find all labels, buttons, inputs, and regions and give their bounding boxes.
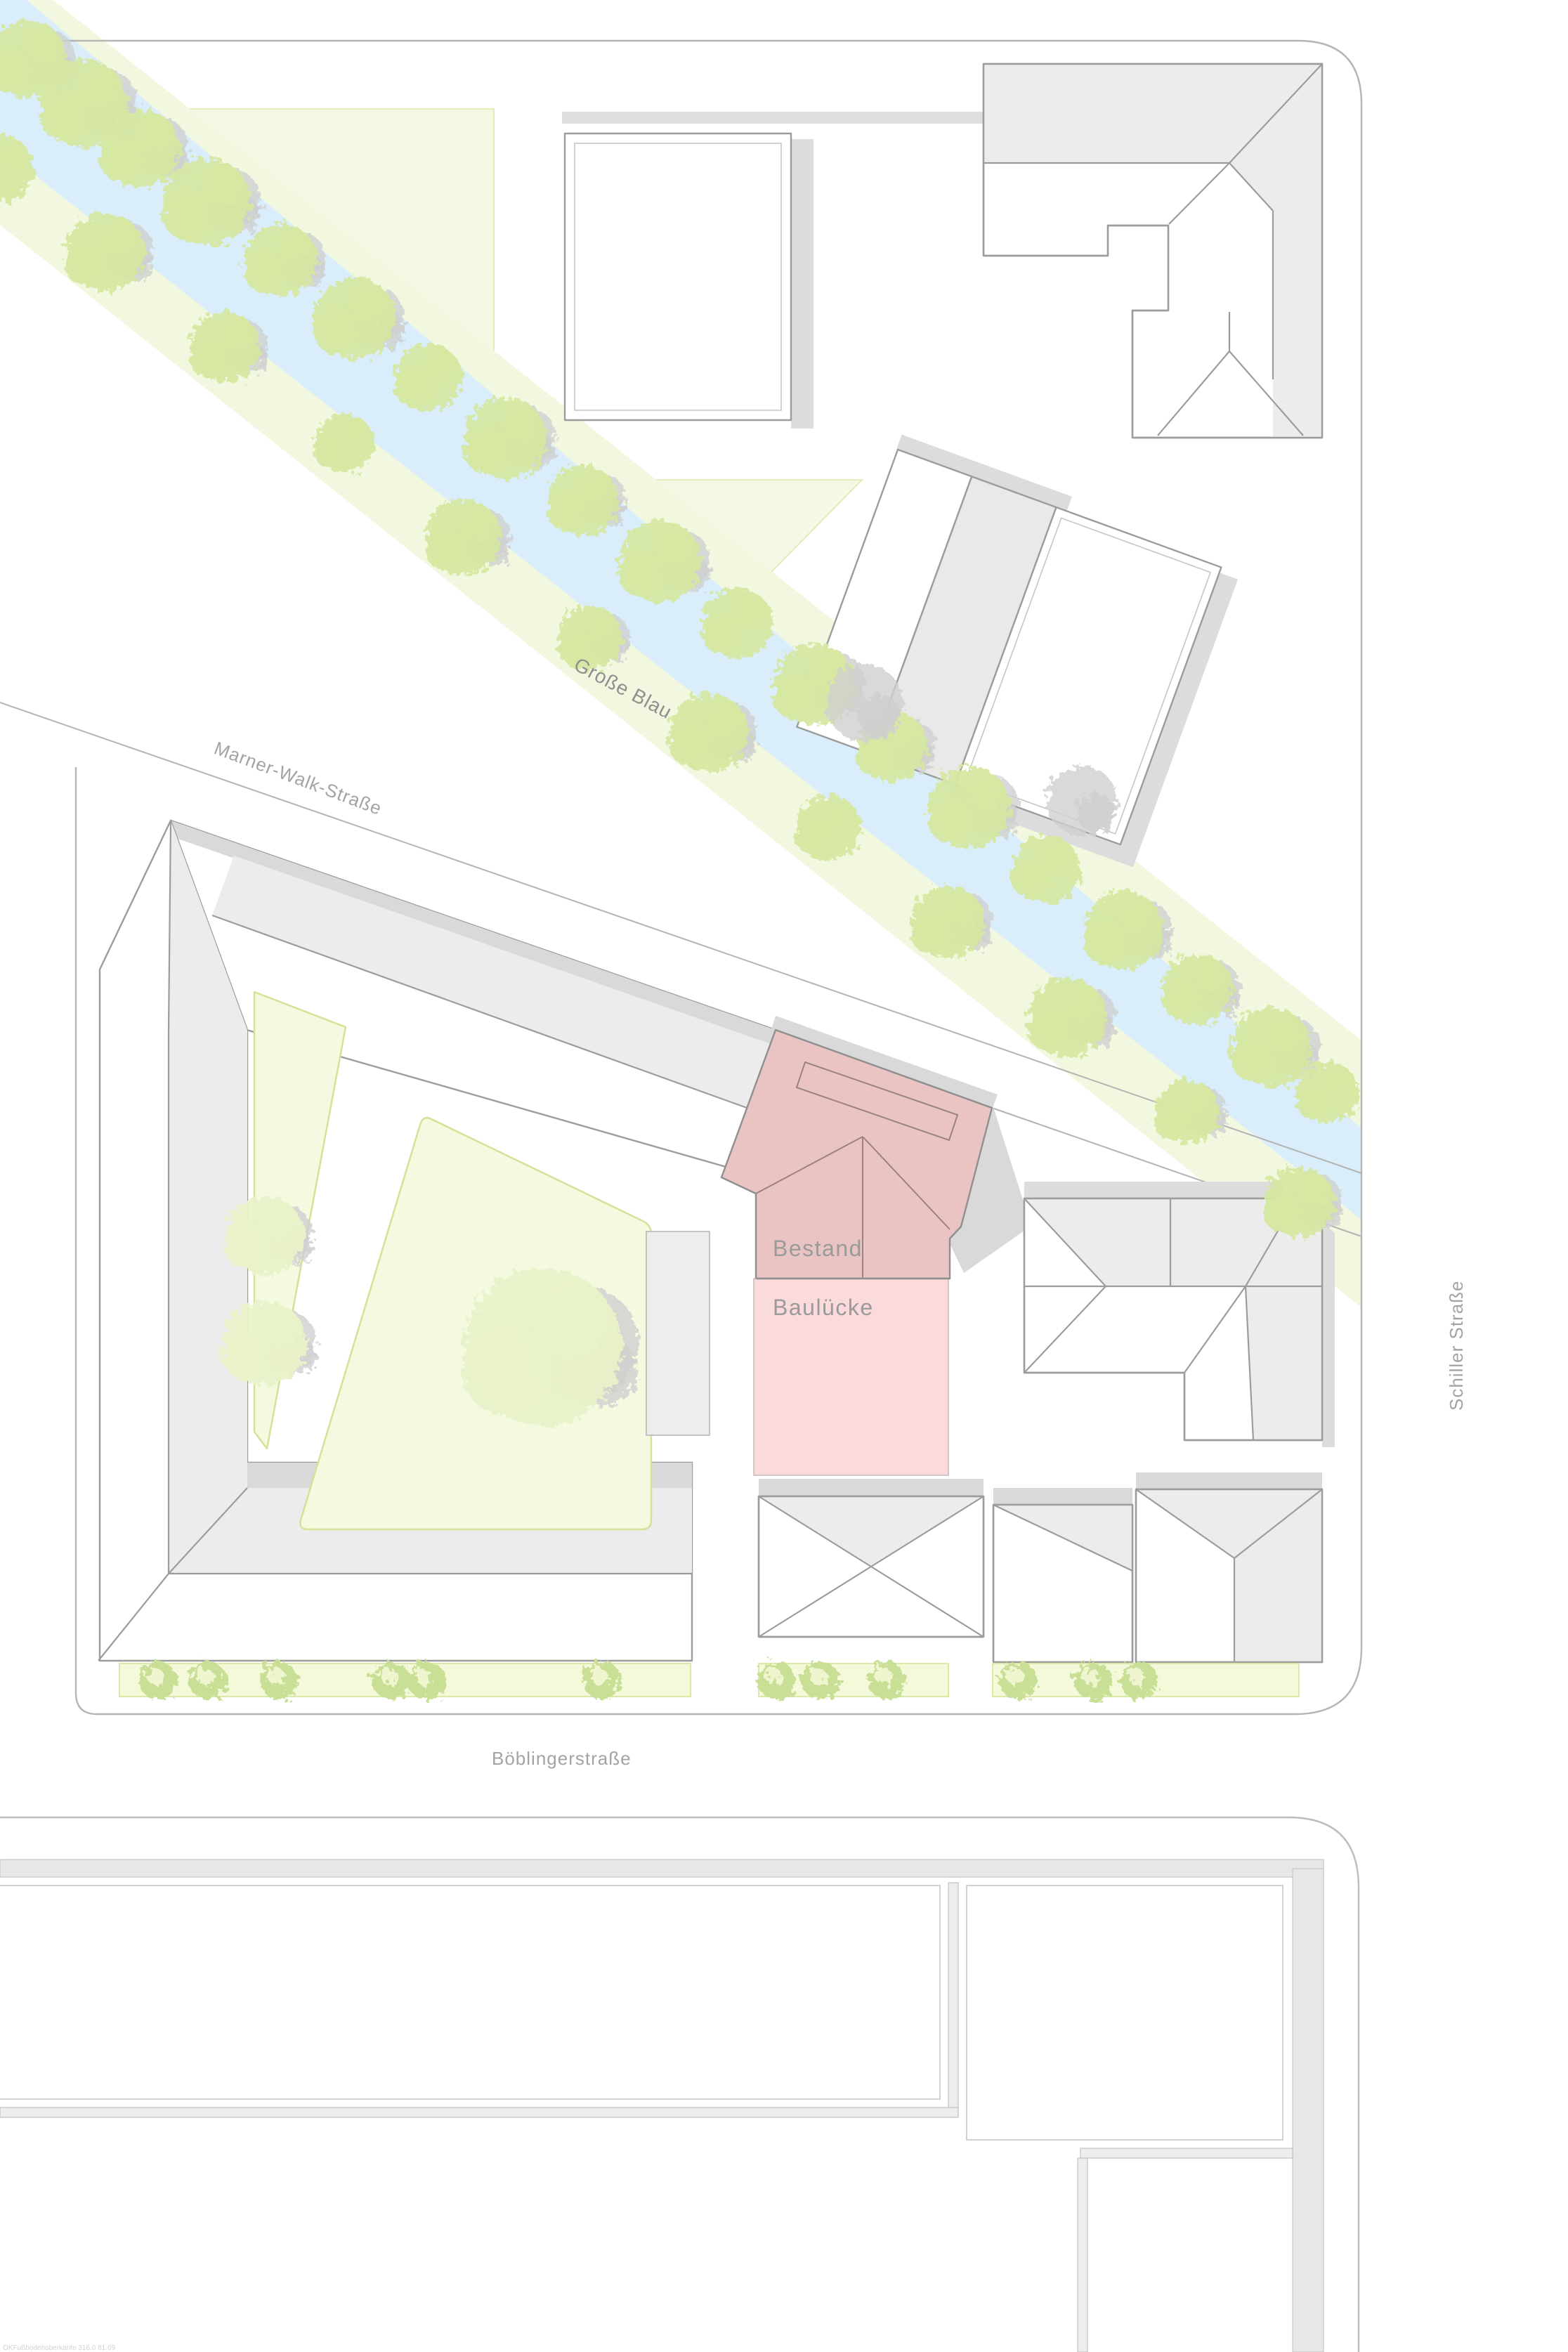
- bauluecke-label: Baulücke: [773, 1295, 874, 1320]
- top-parcel-building: [562, 112, 1026, 429]
- shrub-icon: [139, 1661, 177, 1699]
- street-label-marner-walk: Marner-Walk-Straße: [211, 738, 385, 820]
- bestand-building: [721, 1016, 1031, 1279]
- shrub-icon: [583, 1661, 621, 1699]
- shrub-icon: [868, 1661, 906, 1699]
- street-label-boeblinger: Böblingerstraße: [492, 1748, 632, 1769]
- street-label-schiller: Schiller Straße: [1446, 1281, 1467, 1411]
- shrub-icon: [1120, 1661, 1158, 1699]
- building-row-south: [759, 1472, 1322, 1662]
- shrub-icon: [1074, 1661, 1112, 1699]
- shrub-icon: [802, 1661, 839, 1699]
- building-cluster-northeast: [984, 64, 1322, 438]
- shrub-icon: [372, 1661, 410, 1699]
- tree-icon: [221, 1301, 316, 1385]
- shrub-icon: [188, 1661, 226, 1699]
- shrub-icon: [407, 1661, 445, 1699]
- shrub-icon: [260, 1661, 298, 1699]
- shrub-icon: [999, 1661, 1037, 1699]
- site-plan-page: Große Blau Marner-Walk-Straße Schiller S…: [0, 0, 1568, 2352]
- courtyard-outbuilding: [646, 1231, 710, 1435]
- tree-shadow-icon: [825, 664, 903, 741]
- site-plan-drawing: Große Blau Marner-Walk-Straße Schiller S…: [0, 0, 1568, 2352]
- floorplan-fragment: [0, 1817, 1359, 2352]
- tree-shadow-icon: [1047, 766, 1117, 836]
- shrub-icon: [757, 1661, 795, 1699]
- elevation-footnote: OKFußbodenoberkante 316.0 81.69: [3, 2344, 116, 2352]
- bestand-label: Bestand: [773, 1236, 863, 1261]
